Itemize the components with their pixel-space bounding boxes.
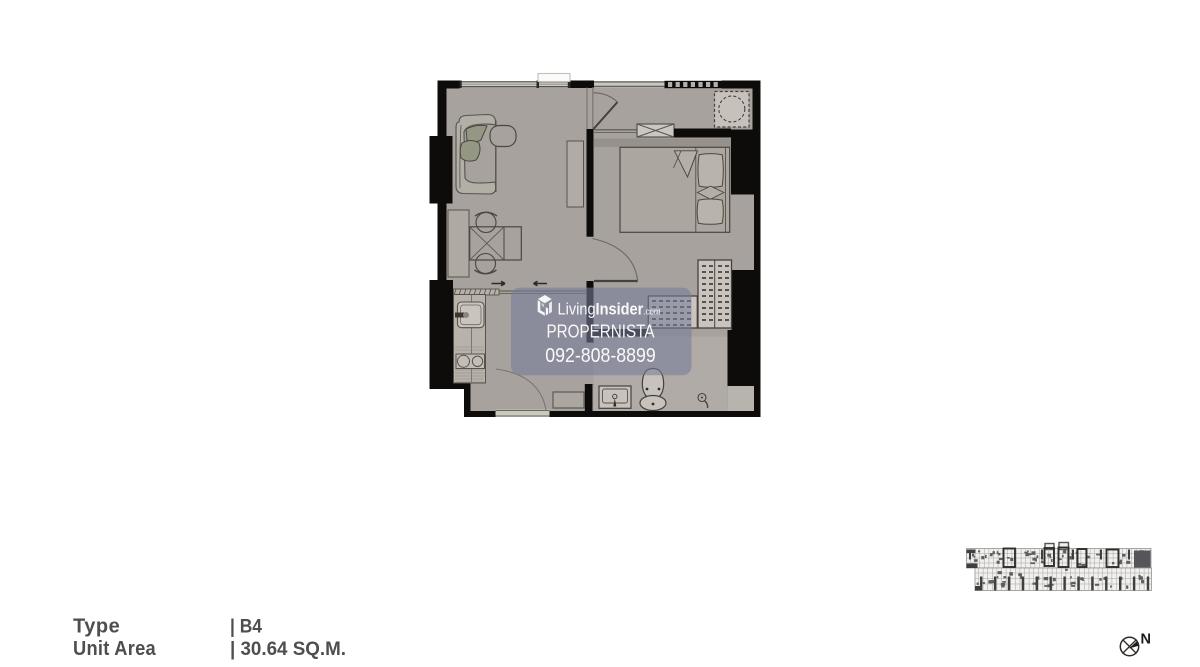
svg-text:Type: Type [73,616,120,638]
svg-text:092-808-8899: 092-808-8899 [545,344,656,367]
svg-text:PROPERNISTA: PROPERNISTA [547,321,656,342]
svg-text:Unit Area: Unit Area [73,638,157,660]
svg-text:N: N [1141,632,1151,648]
svg-text:| 30.64 SQ.M.: | 30.64 SQ.M. [230,639,346,660]
svg-text:| B4: | B4 [230,617,262,638]
